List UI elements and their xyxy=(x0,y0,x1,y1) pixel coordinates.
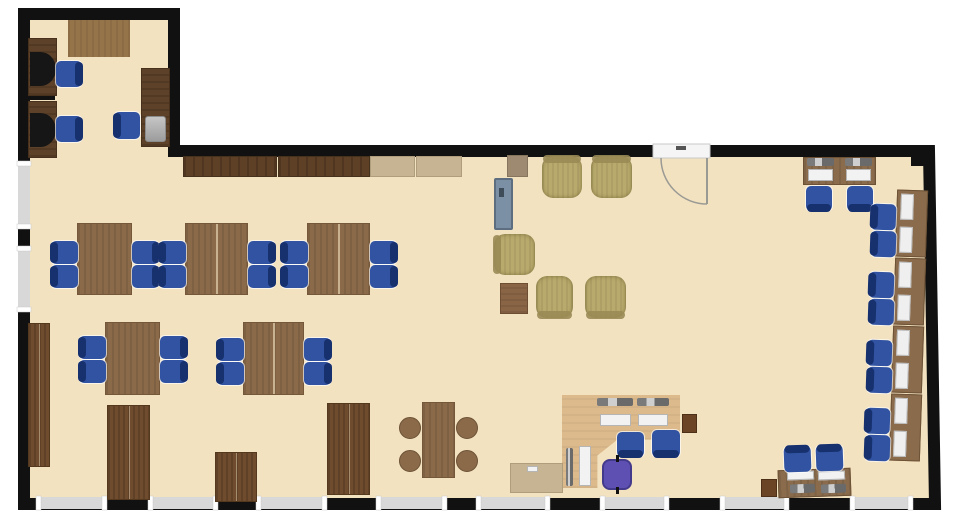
desk-chair-backrest xyxy=(618,450,643,458)
chair xyxy=(370,241,397,264)
computer-desk xyxy=(893,257,926,325)
chair-backrest xyxy=(50,242,58,263)
desk-chair xyxy=(869,299,895,326)
stool xyxy=(456,417,478,439)
chair-backrest xyxy=(268,266,276,287)
chair xyxy=(132,265,159,288)
chair-backrest xyxy=(158,242,166,263)
desk-chair xyxy=(816,445,844,472)
chair xyxy=(51,241,78,264)
window xyxy=(18,248,30,310)
window-cap xyxy=(322,496,327,510)
window-cap xyxy=(442,496,447,510)
chair-backrest xyxy=(268,242,276,263)
window-cap xyxy=(600,496,605,510)
chair xyxy=(217,338,244,361)
keyboard xyxy=(818,471,845,481)
desk-chair-backrest xyxy=(870,232,879,256)
desk-chair xyxy=(871,204,897,231)
window-cap xyxy=(850,496,855,510)
chair xyxy=(281,241,308,264)
chair xyxy=(248,241,275,264)
computer-desk xyxy=(895,189,928,257)
chair xyxy=(304,338,331,361)
window-cap xyxy=(664,496,669,510)
desk-chair xyxy=(617,432,644,457)
chair xyxy=(132,241,159,264)
equipment xyxy=(790,484,815,494)
chair xyxy=(79,360,106,383)
chair-backrest xyxy=(280,242,288,263)
window xyxy=(852,497,911,509)
chair-backrest xyxy=(324,363,332,384)
window-cap xyxy=(784,496,789,510)
chair-backrest xyxy=(216,363,224,384)
equipment xyxy=(637,398,669,406)
partition xyxy=(28,96,55,100)
window xyxy=(722,497,787,509)
chair-backrest xyxy=(180,361,188,382)
armchair xyxy=(585,276,626,318)
equipment xyxy=(597,398,633,406)
keyboard xyxy=(808,169,833,181)
storage-box xyxy=(761,479,777,497)
desk-chair-backrest xyxy=(864,436,873,460)
chair xyxy=(217,362,244,385)
table xyxy=(68,20,130,57)
counter xyxy=(183,156,277,177)
keyboard xyxy=(579,446,591,486)
task-chair xyxy=(602,459,632,490)
window xyxy=(18,163,30,227)
desk-chair-backrest xyxy=(870,205,879,229)
desk-chair xyxy=(869,272,895,299)
work-table xyxy=(105,322,160,395)
chair xyxy=(160,336,187,359)
equipment xyxy=(566,448,573,486)
stool xyxy=(399,417,421,439)
desk-chair xyxy=(806,186,832,211)
window xyxy=(602,497,667,509)
window-cap xyxy=(17,307,31,312)
desk-chair xyxy=(652,430,680,457)
armchair xyxy=(494,234,535,275)
lunch-table xyxy=(422,402,455,478)
desk-chair xyxy=(784,446,812,473)
window-cap xyxy=(545,496,550,510)
desk-chair-backrest xyxy=(113,113,121,138)
desk-chair xyxy=(847,186,873,211)
armchair xyxy=(536,276,573,318)
work-table xyxy=(243,322,304,395)
chair-backrest xyxy=(390,242,398,263)
desk-chair xyxy=(867,367,893,394)
armchair xyxy=(542,156,582,198)
counter xyxy=(278,156,370,177)
desk-chair-backrest xyxy=(868,273,877,297)
chair-backrest xyxy=(280,266,288,287)
work-table xyxy=(307,223,370,295)
window xyxy=(150,497,216,509)
window-cap xyxy=(908,496,913,510)
equipment xyxy=(821,484,846,494)
window-cap xyxy=(17,224,31,229)
chair xyxy=(370,265,397,288)
chair-backrest xyxy=(78,361,86,382)
chair xyxy=(159,265,186,288)
armchair-backrest xyxy=(493,235,501,274)
chair xyxy=(79,336,106,359)
desk-chair xyxy=(865,408,891,435)
storage-cabinet xyxy=(215,452,257,502)
counter xyxy=(416,156,462,177)
chair xyxy=(281,265,308,288)
floor-plan xyxy=(0,0,957,530)
window xyxy=(258,497,325,509)
desk-chair-backrest xyxy=(817,444,842,453)
desk-chair xyxy=(114,112,140,139)
desk-chair-backrest xyxy=(75,117,83,141)
computer-desk xyxy=(891,325,924,393)
chair-backrest xyxy=(390,266,398,287)
chair-backrest xyxy=(180,337,188,358)
printer xyxy=(145,116,166,142)
window xyxy=(38,497,105,509)
desk-chair-backrest xyxy=(807,204,831,212)
stool xyxy=(456,450,478,472)
desk-chair-backrest xyxy=(785,445,810,454)
window-cap xyxy=(17,161,31,166)
window-cap xyxy=(17,246,31,251)
stool xyxy=(399,450,421,472)
chair-backrest xyxy=(50,266,58,287)
window-cap xyxy=(36,496,41,510)
armchair xyxy=(591,156,632,198)
chair xyxy=(304,362,331,385)
chair-backrest xyxy=(158,266,166,287)
computer-desk xyxy=(889,393,922,461)
window-cap xyxy=(720,496,725,510)
desk-chair xyxy=(56,61,82,87)
storage-cabinet xyxy=(327,403,370,495)
storage-box xyxy=(682,414,697,433)
door-tick xyxy=(676,146,686,150)
window-cap xyxy=(376,496,381,510)
desk-chair-backrest xyxy=(866,368,875,392)
desk-chair xyxy=(867,340,893,367)
whiteboard xyxy=(494,178,513,230)
window xyxy=(478,497,548,509)
equipment xyxy=(807,158,834,166)
keyboard xyxy=(638,414,668,426)
desk-chair xyxy=(865,435,891,462)
chair xyxy=(51,265,78,288)
chair-backrest xyxy=(216,339,224,360)
window xyxy=(378,497,445,509)
desk-chair-backrest xyxy=(848,204,872,212)
window-cap xyxy=(476,496,481,510)
keyboard xyxy=(846,169,871,181)
wall-corner-block xyxy=(911,146,933,166)
equipment xyxy=(845,158,872,166)
chair xyxy=(160,360,187,383)
chair xyxy=(248,265,275,288)
work-table xyxy=(185,223,248,295)
desk-chair-backrest xyxy=(864,409,873,433)
desk-chair xyxy=(871,231,897,258)
work-table xyxy=(77,223,132,295)
counter xyxy=(370,156,415,177)
desk-chair xyxy=(56,116,82,142)
chair-backrest xyxy=(78,337,86,358)
cabinet xyxy=(507,155,528,177)
keyboard xyxy=(600,414,631,426)
coffee-table xyxy=(500,283,528,314)
storage-cabinet xyxy=(28,323,50,467)
armchair-backrest xyxy=(537,311,572,319)
desk-chair-backrest xyxy=(653,450,679,458)
desk-chair-backrest xyxy=(868,300,877,324)
armchair-backrest xyxy=(543,155,581,163)
storage-cabinet xyxy=(107,405,150,500)
paper xyxy=(527,466,538,472)
desk-chair-backrest xyxy=(866,341,875,365)
armchair-backrest xyxy=(592,155,631,163)
armchair-backrest xyxy=(586,311,625,319)
desk-chair-backrest xyxy=(75,62,83,86)
chair-backrest xyxy=(324,339,332,360)
chair xyxy=(159,241,186,264)
